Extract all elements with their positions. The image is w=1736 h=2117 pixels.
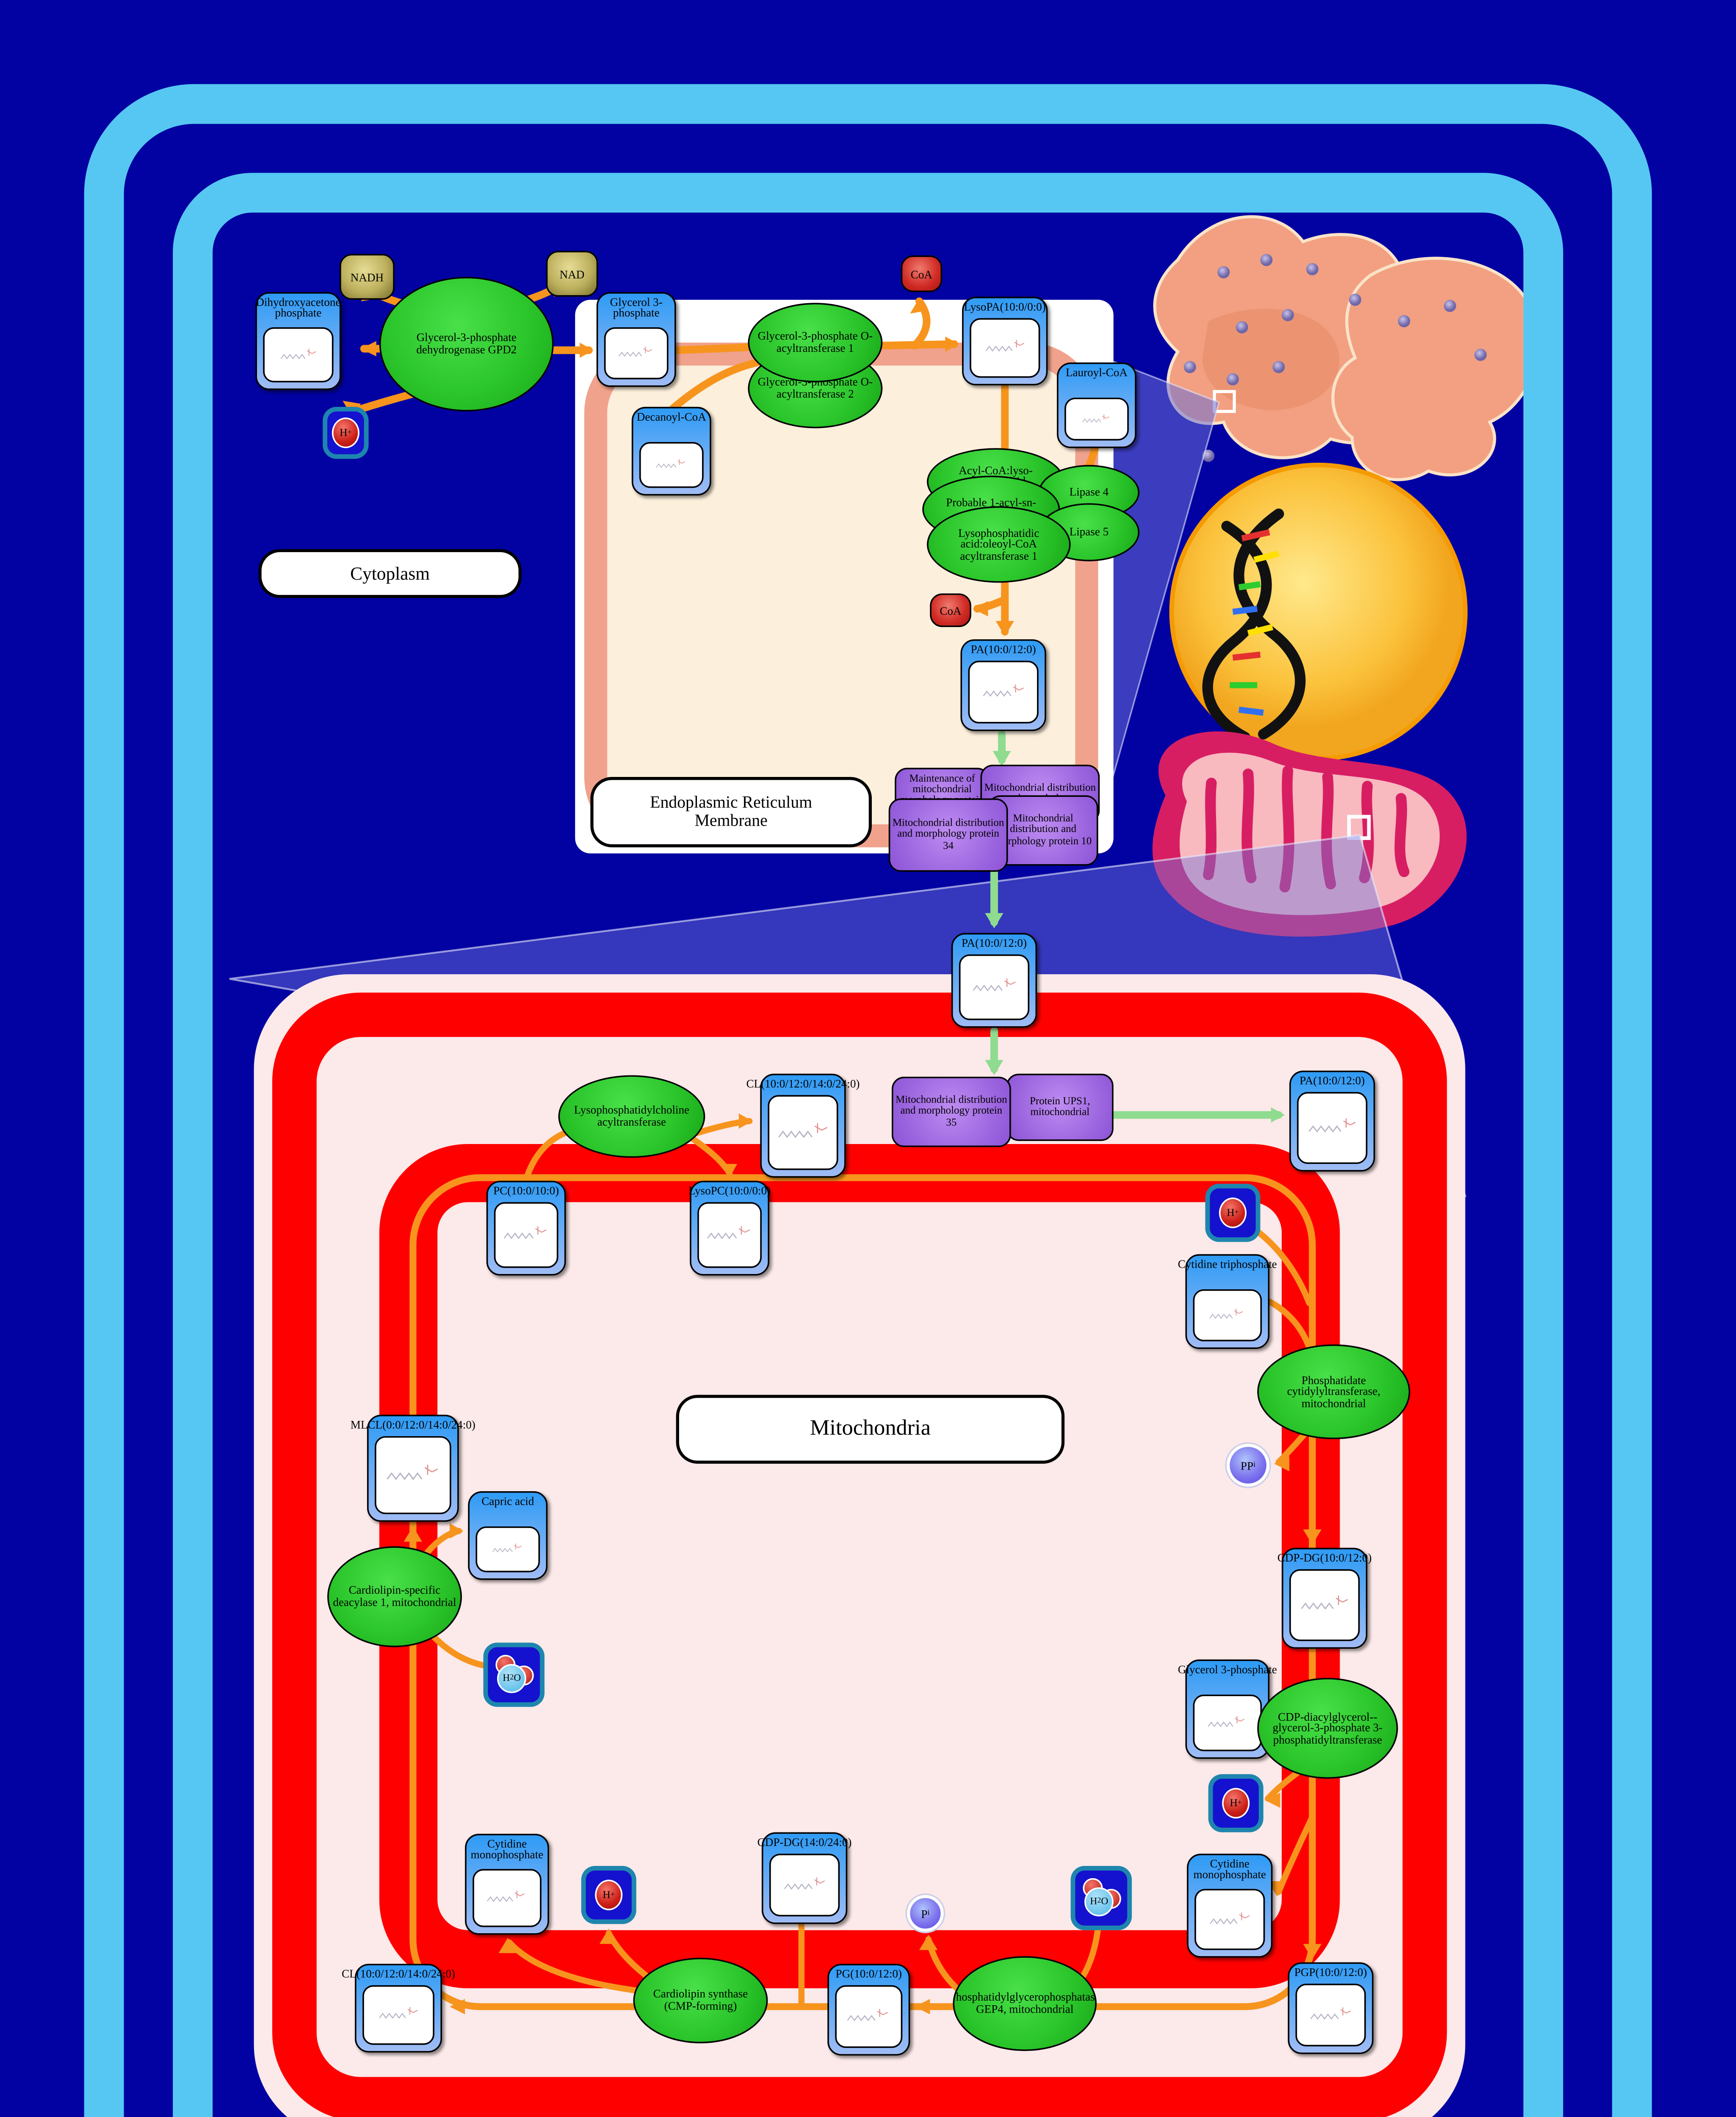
metabolite-structure-box	[970, 318, 1040, 378]
complex-mdm35-box[interactable]: Mitochondrial distribution and morpholog…	[892, 1077, 1011, 1147]
hplus-frame: H+	[1213, 1779, 1259, 1828]
metabolite-label: MLCL(0:0/12:0/14:0/24:0)	[351, 1418, 475, 1430]
metabolite-decanoyl-coa-node[interactable]: Decanoyl-CoA	[632, 407, 711, 496]
cytoplasm-label-pill: Cytoplasm	[258, 549, 521, 598]
enzyme-label: Phosphatidylglycerophosphatase GEP4, mit…	[953, 1992, 1097, 2015]
complex-label: Mitochondrial distribution and morpholog…	[892, 818, 1005, 852]
proton-icon: H+	[1222, 1788, 1249, 1819]
enzyme-gpat1-ellipse[interactable]: Glycerol-3-phosphate O-acyltransferase 1	[748, 303, 882, 382]
cofactor-label-part: CoA	[911, 267, 932, 281]
chemical-structure-icon	[842, 2002, 896, 2031]
metabolite-structure-box	[375, 1436, 451, 1514]
enzyme-label: Cardiolipin-specific deacylase 1, mitoch…	[332, 1585, 457, 1608]
metabolite-dhap-node[interactable]: Dihydroxyacetone phosphate	[255, 292, 341, 390]
metabolite-label: Lauroyl-CoA	[1048, 366, 1145, 378]
metabolite-label: Glycerol 3-phosphate	[1176, 1663, 1279, 1675]
metabolite-lauroyl-coa-node[interactable]: Lauroyl-CoA	[1057, 362, 1136, 448]
chemical-structure-icon	[1304, 1111, 1360, 1145]
metabolite-structure-box	[473, 1869, 542, 1927]
enzyme-label: Phosphatidate cytidylyltransferase, mito…	[1262, 1374, 1406, 1409]
metabolite-label: Cytidine monophosphate	[1178, 1857, 1282, 1881]
metabolite-structure-box	[494, 1202, 558, 1268]
metabolite-structure-box	[1297, 1092, 1367, 1164]
chemical-structure-icon	[611, 341, 662, 366]
complex-label: Mitochondrial distribution and morpholog…	[895, 1095, 1008, 1129]
chemical-structure-icon	[382, 1456, 444, 1494]
er-label-pill: Endoplasmic Reticulum Membrane	[590, 777, 872, 847]
cofactor-coa-top-badge[interactable]: CoA	[901, 255, 943, 292]
chemical-structure-icon	[1200, 1303, 1255, 1328]
cofactor-coa-er-badge[interactable]: CoA	[930, 594, 971, 627]
metabolite-lysopc-node[interactable]: LysoPC(10:0/0:0)	[690, 1181, 769, 1276]
h2o-frame: H2O	[488, 1647, 540, 1702]
chemical-structure-icon	[975, 677, 1031, 707]
metabolite-pa-mito-node[interactable]: PA(10:0/12:0)	[1289, 1071, 1375, 1172]
metabolite-pg-node[interactable]: PG(10:0/12:0)	[827, 1964, 910, 2056]
chemical-structure-icon	[966, 972, 1022, 1003]
cofactor-label-part: O	[514, 1673, 521, 1683]
chemical-structure-icon	[1071, 409, 1122, 429]
enzyme-label: Lipase 5	[1070, 526, 1109, 538]
cofactor-label-part: O	[1101, 1896, 1108, 1907]
cofactor-nad-badge[interactable]: NAD	[546, 251, 598, 296]
cofactor-h-right-upper-badge[interactable]: H+	[1205, 1184, 1260, 1242]
cofactor-label-part: PP	[1241, 1458, 1253, 1472]
metabolite-label: CDP-DG(10:0/12:0)	[1277, 1552, 1372, 1564]
er-label-line2: Membrane	[695, 812, 768, 831]
cofactor-label-part: i	[1253, 1462, 1255, 1469]
metabolite-cmp-right-node[interactable]: Cytidine monophosphate	[1187, 1854, 1272, 1958]
chemical-structure-icon	[1296, 1588, 1352, 1622]
cofactor-label-part: i	[927, 1910, 929, 1917]
cofactor-label-part: +	[1235, 1209, 1239, 1217]
water-icon: H2O	[497, 1664, 526, 1693]
cofactor-h-right-lower-badge[interactable]: H+	[1208, 1774, 1263, 1832]
metabolite-structure-box	[475, 1526, 540, 1572]
metabolite-label: PG(10:0/12:0)	[836, 1968, 902, 1979]
cytoplasm-label: Cytoplasm	[350, 562, 430, 585]
hplus-frame: H+	[1210, 1188, 1255, 1238]
metabolite-structure-box	[362, 1985, 434, 2045]
metabolite-structure-box	[768, 1095, 838, 1170]
metabolite-structure-box	[1064, 398, 1129, 440]
cofactor-nadh-badge[interactable]: NADH	[340, 254, 395, 300]
metabolite-pgp-node[interactable]: PGP(10:0/12:0)	[1288, 1962, 1374, 2054]
metabolite-label: Cytidine triphosphate	[1176, 1258, 1279, 1270]
enzyme-pcyt2-ellipse[interactable]: Phosphatidate cytidylyltransferase, mito…	[1257, 1344, 1410, 1439]
metabolite-structure-box	[639, 442, 704, 488]
chemical-structure-icon	[776, 1870, 832, 1900]
metabolite-structure-box	[697, 1202, 762, 1268]
metabolite-capric-acid-node[interactable]: Capric acid	[468, 1491, 547, 1580]
metabolite-cmp-left-node[interactable]: Cytidine monophosphate	[465, 1834, 549, 1935]
cofactor-h-bottom-badge[interactable]: H+	[581, 1866, 636, 1924]
metabolite-label: Decanoyl-CoA	[622, 411, 720, 423]
cofactor-label-part: H	[1090, 1896, 1097, 1907]
metabolite-cl-bottom-node[interactable]: CL(10:0/12:0/14:0/24:0)	[355, 1964, 442, 2053]
metabolite-label: Cytidine monophosphate	[456, 1838, 558, 1861]
cofactor-pi-badge[interactable]: Pi	[907, 1895, 944, 1932]
metabolite-label: CDP-DG(14:0/24:0)	[757, 1836, 852, 1848]
chemical-structure-icon	[704, 1219, 755, 1251]
enzyme-lpaat1-ellipse[interactable]: Lysophosphatidic acid:oleoyl-CoA acyltra…	[927, 506, 1071, 583]
metabolite-structure-box	[263, 327, 333, 382]
mitochondria-label-pill: Mitochondria	[676, 1395, 1065, 1464]
chemical-structure-icon	[977, 334, 1033, 362]
h2o-frame: H2O	[1075, 1871, 1127, 1926]
cofactor-label-part: 2	[510, 1675, 514, 1682]
cofactor-label-part: NADH	[351, 270, 384, 284]
cofactor-label-part: NAD	[560, 267, 585, 281]
metabolite-structure-box	[1193, 1694, 1262, 1751]
chemical-structure-icon	[270, 342, 326, 368]
metabolite-structure-box	[959, 954, 1029, 1020]
cofactor-label-part: H	[1227, 1207, 1234, 1219]
chemical-structure-icon	[1302, 2000, 1359, 2030]
metabolite-label: PA(10:0/12:0)	[971, 643, 1036, 655]
pathway-diagram: Dihydroxyacetone phosphateGlycerol 3-pho…	[0, 0, 1736, 2117]
enzyme-label: Lysophosphatidylcholine acyltransferase	[563, 1105, 700, 1128]
metabolite-structure-box	[835, 1985, 902, 2048]
metabolite-label: Glycerol 3-phosphate	[587, 296, 685, 320]
cofactor-label-part: 2	[1097, 1898, 1101, 1905]
cofactor-h2o-left-badge[interactable]: H2O	[483, 1643, 544, 1707]
metabolite-label: LysoPC(10:0/0:0)	[688, 1185, 771, 1197]
cofactor-label-part: +	[347, 429, 351, 437]
metabolite-label: LysoPA(10:0/0:0)	[964, 301, 1046, 312]
metabolite-structure-box	[769, 1854, 840, 1916]
metabolite-label: PGP(10:0/12:0)	[1294, 1966, 1367, 1978]
enzyme-label: CDP-diacylglycerol--glycerol-3-phosphate…	[1262, 1711, 1393, 1746]
metabolite-pc-node[interactable]: PC(10:0/10:0)	[487, 1181, 566, 1276]
cofactor-ppi-badge[interactable]: PPi	[1227, 1444, 1269, 1487]
chemical-structure-icon	[1202, 1905, 1258, 1934]
cofactor-label-part: H	[603, 1889, 610, 1901]
metabolite-lysopa-node[interactable]: LysoPA(10:0/0:0)	[962, 297, 1048, 386]
cofactor-label-part: H	[503, 1673, 510, 1683]
er-label-line1: Endoplasmic Reticulum	[650, 793, 812, 812]
hplus-frame: H+	[586, 1871, 632, 1920]
metabolite-g3p-cyto-node[interactable]: Glycerol 3-phosphate	[597, 292, 676, 387]
metabolite-mlcl-node[interactable]: MLCL(0:0/12:0/14:0/24:0)	[367, 1415, 459, 1522]
chemical-structure-icon	[370, 2001, 428, 2029]
chemical-structure-icon	[1200, 1710, 1255, 1736]
enzyme-label: Cardiolipin synthase (CMP-forming)	[638, 1989, 763, 2012]
metabolite-structure-box	[1193, 1289, 1262, 1341]
complex-mdm34-box[interactable]: Mitochondrial distribution and morpholog…	[889, 799, 1008, 872]
proton-icon: H+	[332, 417, 359, 448]
metabolite-ctp-node[interactable]: Cytidine triphosphate	[1186, 1254, 1270, 1349]
enzyme-label: Lysophosphatidic acid:oleoyl-CoA acyltra…	[932, 527, 1066, 562]
cofactor-h2o-bottom-badge[interactable]: H2O	[1071, 1866, 1132, 1930]
metabolite-label: PC(10:0/10:0)	[493, 1185, 559, 1197]
metabolite-label: PA(10:0/12:0)	[962, 937, 1027, 949]
metabolite-g3p-mito-node[interactable]: Glycerol 3-phosphate	[1186, 1659, 1270, 1759]
cofactor-label-part: H	[1230, 1797, 1237, 1809]
metabolite-structure-box	[1289, 1569, 1360, 1641]
enzyme-label: Lipase 4	[1070, 486, 1109, 498]
metabolite-structure-box	[1194, 1889, 1265, 1950]
enzyme-cls-ellipse[interactable]: Cardiolipin synthase (CMP-forming)	[633, 1958, 768, 2043]
cofactor-label-part: H	[340, 427, 347, 439]
complex-ups1-box[interactable]: Protein UPS1, mitochondrial	[1006, 1074, 1114, 1141]
cofactor-h-cytoplasm-badge[interactable]: H+	[323, 407, 368, 459]
proton-icon: H+	[1219, 1197, 1247, 1228]
metabolite-label: CL(10:0/12:0/14:0/24:0)	[746, 1078, 860, 1089]
enzyme-gpd2-ellipse[interactable]: Glycerol-3-phosphate dehydrogenase GPD2	[379, 277, 554, 412]
cofactor-label-part: P	[921, 1907, 927, 1921]
complex-label: Protein UPS1, mitochondrial	[1009, 1096, 1110, 1118]
chemical-structure-icon	[775, 1114, 831, 1150]
mitochondria-label: Mitochondria	[810, 1416, 931, 1442]
metabolite-label: Dihydroxyacetone phosphate	[246, 296, 351, 320]
chemical-structure-icon	[646, 454, 697, 476]
cofactor-label-part: CoA	[940, 603, 961, 617]
metabolite-label: Capric acid	[459, 1495, 557, 1507]
enzyme-label: Glycerol-3-phosphate dehydrogenase GPD2	[384, 332, 549, 356]
metabolite-label: PA(10:0/12:0)	[1299, 1075, 1365, 1086]
cofactor-label-part: +	[611, 1891, 615, 1899]
metabolite-label: CL(10:0/12:0/14:0/24:0)	[342, 1968, 455, 1979]
chemical-structure-icon	[479, 1884, 534, 1912]
metabolite-cdpdg-bottom-node[interactable]: CDP-DG(14:0/24:0)	[762, 1832, 847, 1924]
hplus-frame: H+	[327, 412, 364, 454]
enzyme-gep4-ellipse[interactable]: Phosphatidylglycerophosphatase GEP4, mit…	[953, 1956, 1097, 2051]
water-icon: H2O	[1085, 1887, 1114, 1916]
metabolite-structure-box	[1296, 1984, 1366, 2046]
enzyme-lpcat-ellipse[interactable]: Lysophosphatidylcholine acyltransferase	[558, 1075, 705, 1158]
proton-icon: H+	[595, 1880, 622, 1910]
metabolite-cdpdg-right-node[interactable]: CDP-DG(10:0/12:0)	[1282, 1548, 1367, 1649]
metabolite-structure-box	[968, 661, 1039, 724]
chemical-structure-icon	[500, 1219, 552, 1251]
enzyme-label: Glycerol-3-phosphate O-acyltransferase 1	[752, 331, 878, 354]
enzyme-cld1-ellipse[interactable]: Cardiolipin-specific deacylase 1, mitoch…	[327, 1546, 462, 1647]
metabolite-structure-box	[604, 327, 669, 379]
metabolite-cl-top-node[interactable]: CL(10:0/12:0/14:0/24:0)	[760, 1074, 846, 1178]
cofactor-label-part: +	[1238, 1799, 1242, 1807]
metabolite-pa-ims-node[interactable]: PA(10:0/12:0)	[951, 933, 1037, 1028]
metabolite-pa-er-node[interactable]: PA(10:0/12:0)	[961, 639, 1046, 731]
chemical-structure-icon	[482, 1539, 534, 1560]
enzyme-pgs1-ellipse[interactable]: CDP-diacylglycerol--glycerol-3-phosphate…	[1257, 1678, 1398, 1779]
